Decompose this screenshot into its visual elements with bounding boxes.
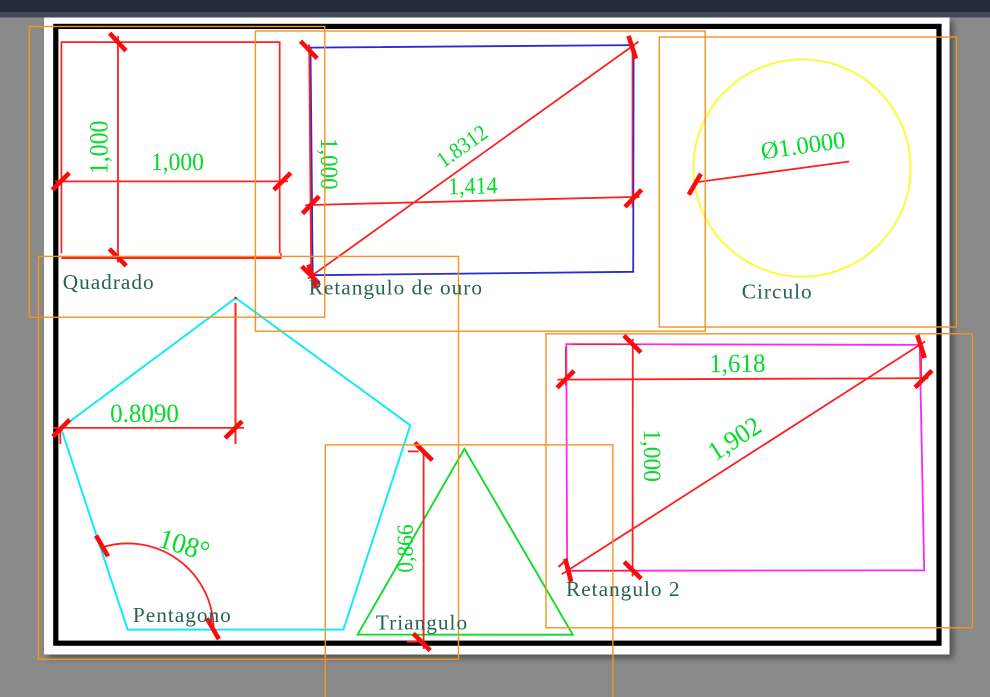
svg-text:1,000: 1,000 xyxy=(638,429,666,482)
svg-text:1,000: 1,000 xyxy=(315,138,343,190)
svg-text:1,414: 1,414 xyxy=(448,172,498,200)
svg-text:1,000: 1,000 xyxy=(86,121,114,175)
svg-text:Retangulo de ouro: Retangulo de ouro xyxy=(309,275,483,299)
svg-text:Circulo: Circulo xyxy=(742,280,813,304)
svg-text:0,866: 0,866 xyxy=(392,524,418,572)
svg-text:Pentagono: Pentagono xyxy=(133,603,232,627)
svg-text:Quadrado: Quadrado xyxy=(63,270,155,294)
svg-text:Retangulo 2: Retangulo 2 xyxy=(566,577,681,601)
svg-text:Triangulo: Triangulo xyxy=(376,610,468,634)
svg-text:1,000: 1,000 xyxy=(151,148,204,176)
svg-text:0.8090: 0.8090 xyxy=(110,399,179,429)
svg-text:1,618: 1,618 xyxy=(709,348,765,378)
